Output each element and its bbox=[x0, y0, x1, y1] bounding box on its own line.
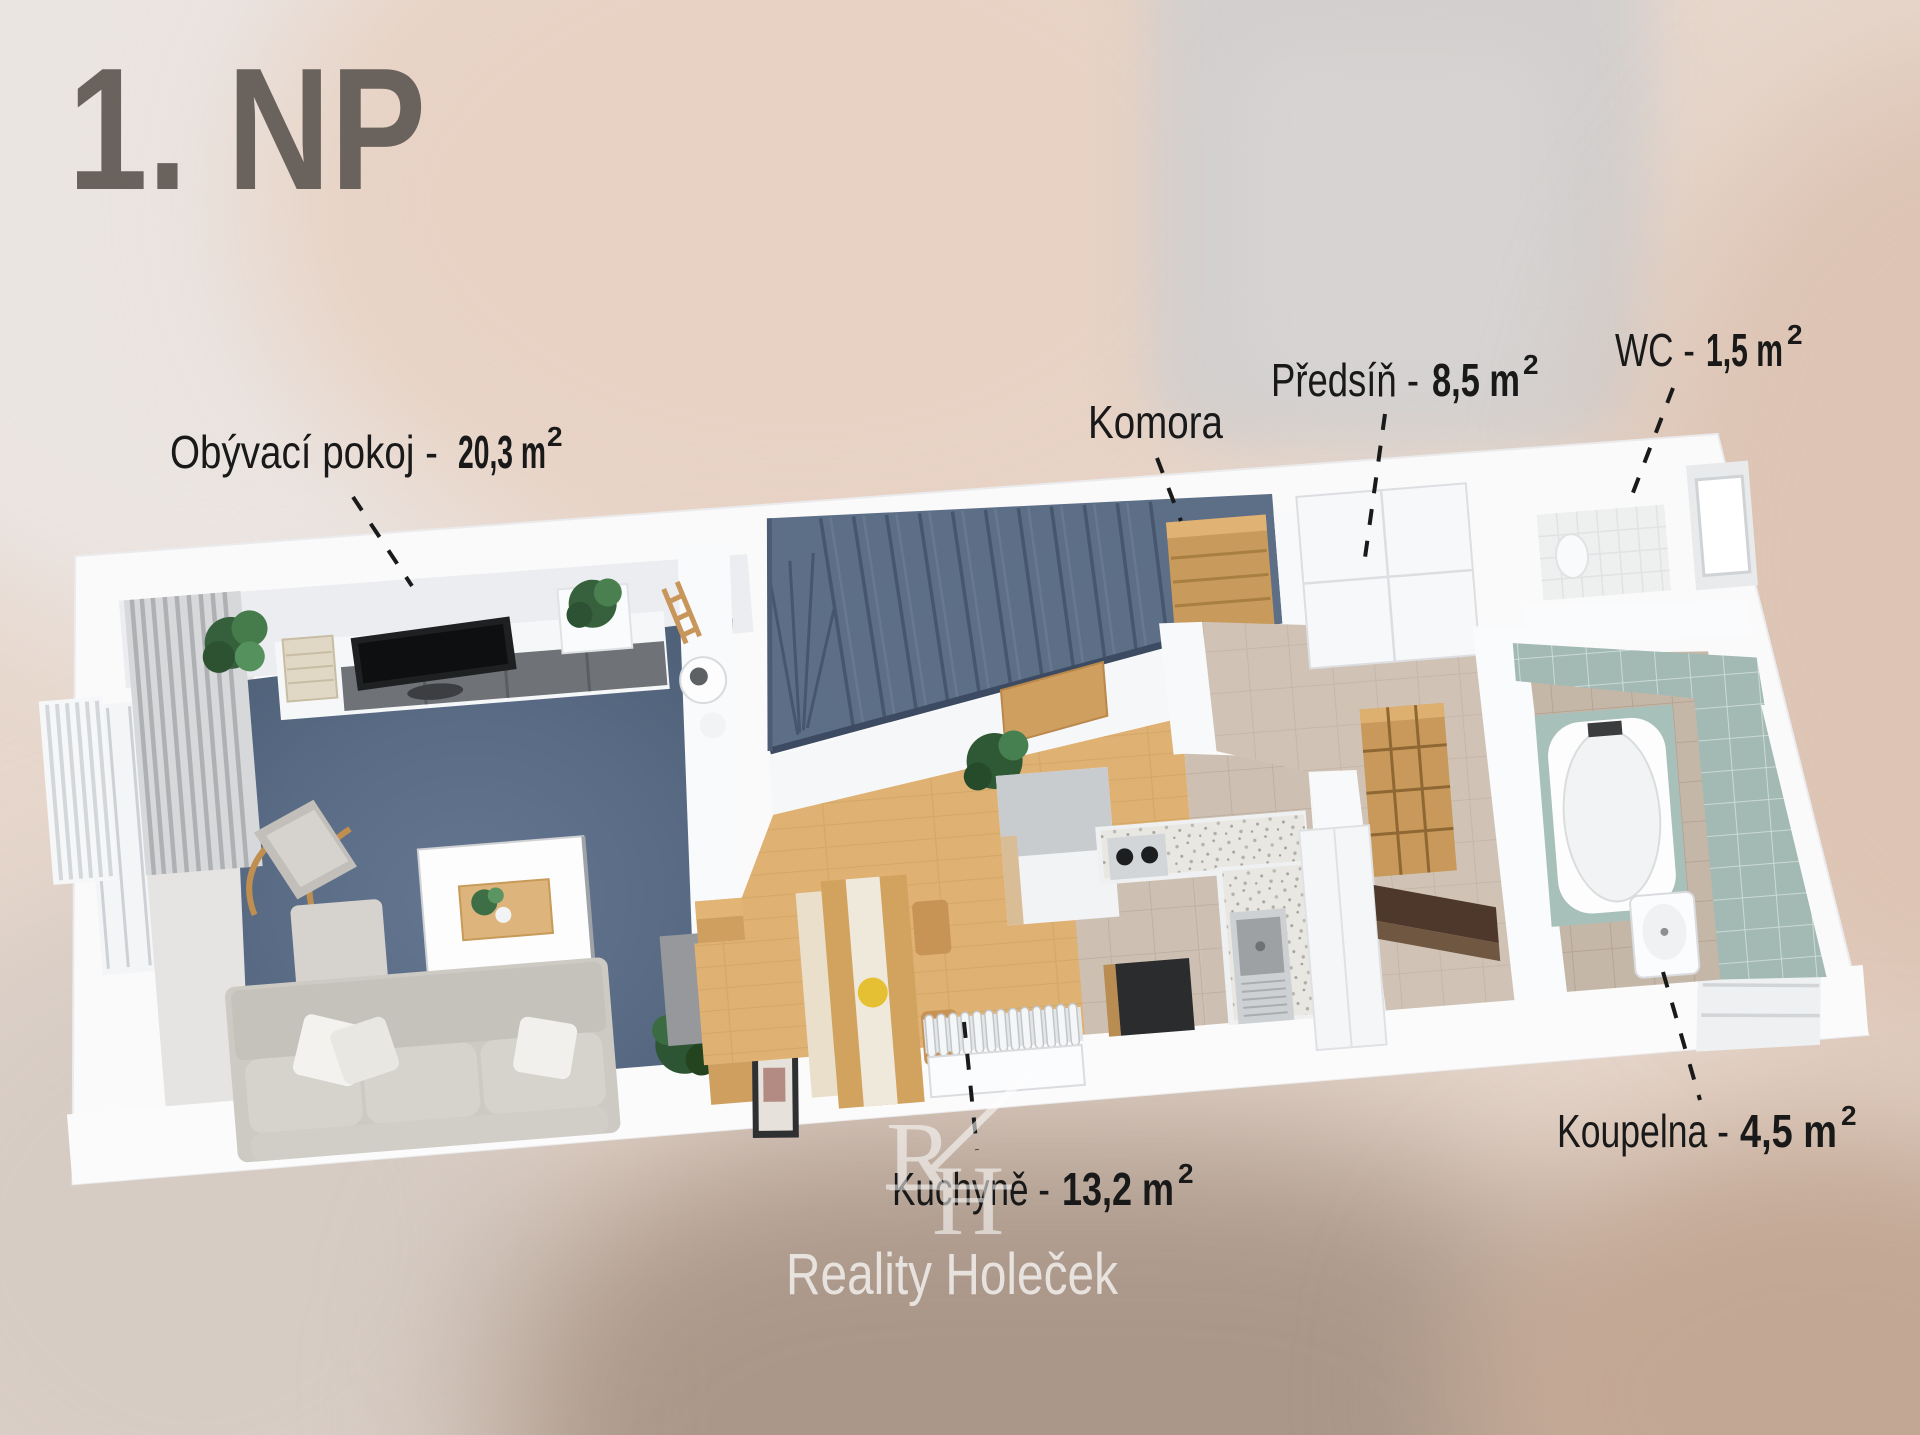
svg-text:4,5 m: 4,5 m bbox=[1740, 1105, 1837, 1157]
svg-text:H: H bbox=[932, 1145, 1004, 1256]
svg-text:2: 2 bbox=[547, 421, 563, 452]
svg-text:2: 2 bbox=[1178, 1158, 1194, 1189]
svg-text:2: 2 bbox=[1787, 319, 1803, 350]
svg-text:20,3 m: 20,3 m bbox=[458, 426, 546, 478]
svg-text:Koupelna -: Koupelna - bbox=[1557, 1105, 1729, 1157]
svg-text:1,5 m: 1,5 m bbox=[1706, 324, 1783, 376]
svg-text:Obývací pokoj -: Obývací pokoj - bbox=[170, 426, 438, 478]
svg-text:1. NP: 1. NP bbox=[68, 31, 426, 226]
svg-text:2: 2 bbox=[1523, 349, 1539, 380]
svg-text:8,5 m: 8,5 m bbox=[1432, 354, 1520, 406]
svg-text:Komora: Komora bbox=[1088, 396, 1223, 448]
svg-text:Reality Holeček: Reality Holeček bbox=[786, 1242, 1119, 1307]
svg-text:2: 2 bbox=[1841, 1100, 1857, 1131]
svg-text:13,2 m: 13,2 m bbox=[1062, 1163, 1174, 1215]
svg-text:WC -: WC - bbox=[1615, 324, 1695, 376]
svg-text:Předsíň -: Předsíň - bbox=[1271, 354, 1419, 406]
